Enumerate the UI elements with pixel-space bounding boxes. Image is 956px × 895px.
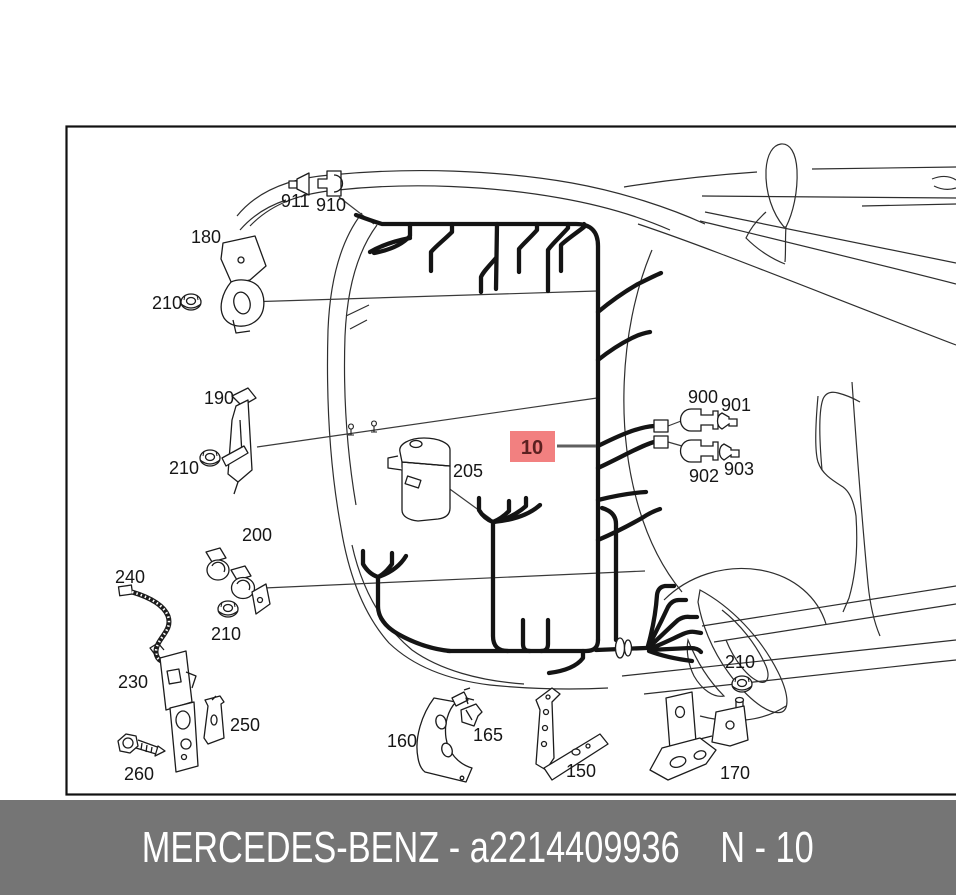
part-label-210-a: 210 [152, 293, 182, 313]
part-label-230: 230 [118, 672, 148, 692]
inline-connector [654, 436, 668, 448]
parts-catalog-page: 10 911 910 180 210 190 210 205 900 901 9… [0, 0, 956, 895]
footer-text: MERCEDES-BENZ - a2214409936 N - 10 [142, 823, 814, 873]
part-label-210-d: 210 [725, 652, 755, 672]
footer-page-ref: N - 10 [721, 823, 814, 873]
part-902-connector [681, 440, 719, 462]
part-label-180: 180 [191, 227, 221, 247]
callout-10-label: 10 [521, 437, 543, 459]
wiring-harness-diagram: 10 911 910 180 210 190 210 205 900 901 9… [0, 0, 956, 800]
part-label-903: 903 [724, 459, 754, 479]
part-label-210-b: 210 [169, 458, 199, 478]
part-label-901: 901 [721, 395, 751, 415]
part-label-150: 150 [566, 761, 596, 781]
part-900-connector [681, 409, 719, 431]
part-label-250: 250 [230, 715, 260, 735]
part-210-nut [732, 676, 752, 692]
harness-grommet [616, 638, 632, 658]
part-label-170: 170 [720, 763, 750, 783]
part-210-nut [200, 450, 220, 466]
part-label-900: 900 [688, 387, 718, 407]
part-label-911: 911 [281, 191, 310, 211]
part-label-200: 200 [242, 525, 272, 545]
part-label-902: 902 [689, 466, 719, 486]
part-label-190: 190 [204, 388, 234, 408]
footer-brand-part-number: MERCEDES-BENZ - a2214409936 [142, 823, 680, 873]
part-250 [204, 696, 224, 744]
part-210-nut [218, 601, 238, 617]
footer-bar: MERCEDES-BENZ - a2214409936 N - 10 [0, 800, 956, 895]
part-label-910: 910 [316, 195, 346, 215]
part-label-205: 205 [453, 461, 483, 481]
part-label-210-c: 210 [211, 624, 241, 644]
part-label-240: 240 [115, 567, 145, 587]
part-210-nut [181, 294, 201, 310]
inline-connector [654, 420, 668, 432]
part-label-165: 165 [473, 725, 503, 745]
part-label-160: 160 [387, 731, 417, 751]
part-label-260: 260 [124, 764, 154, 784]
